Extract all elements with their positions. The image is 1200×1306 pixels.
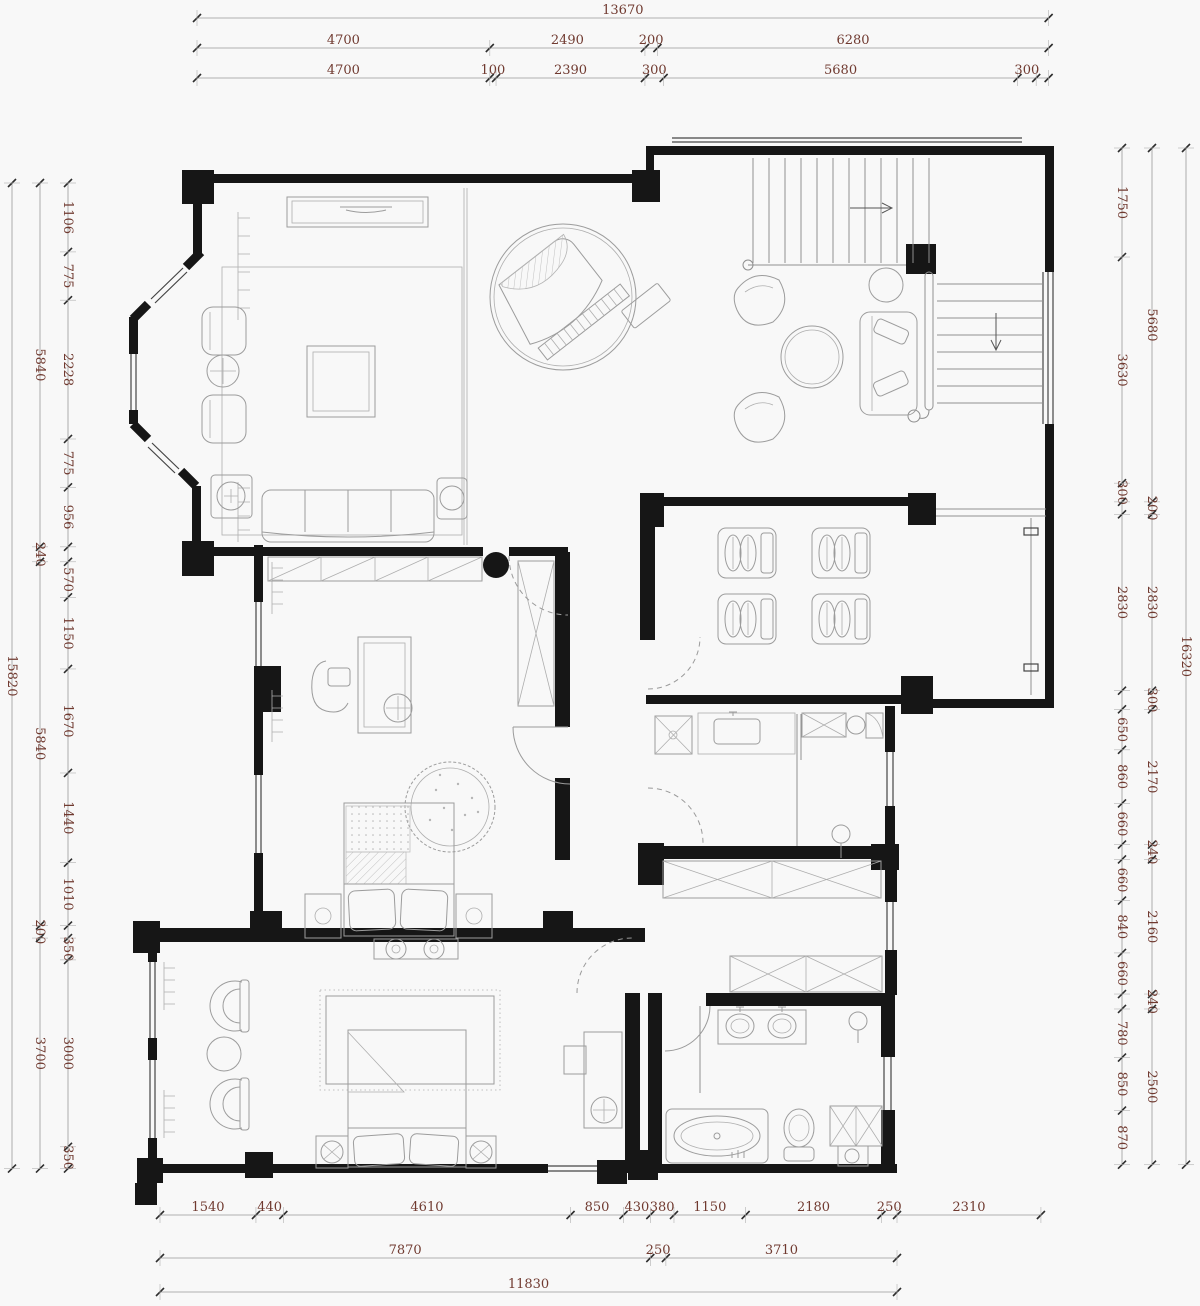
dimension-label: 5840 <box>32 348 47 381</box>
dimension-label: 380 <box>650 1200 675 1215</box>
dimension-label: 2390 <box>554 63 587 78</box>
basin <box>847 716 865 734</box>
dimension-label: 11830 <box>508 1277 549 1292</box>
dimension-label: 660 <box>1114 812 1129 837</box>
dimension-label: 2830 <box>1144 586 1159 619</box>
dimension-label: 6280 <box>836 33 869 48</box>
wardrobe <box>518 561 554 706</box>
dimension-label: 2830 <box>1114 586 1129 619</box>
dimension-label: 300 <box>1014 63 1039 78</box>
dimension-label: 5840 <box>32 727 47 760</box>
dimension-label: 780 <box>1114 1021 1129 1046</box>
tea-room-furniture <box>718 528 870 644</box>
stair-hall-furniture <box>734 268 917 442</box>
dimension-label: 300 <box>642 63 667 78</box>
dimension-label: 2490 <box>551 33 584 48</box>
dimension-label: 956 <box>60 505 75 530</box>
dimension-label: 4700 <box>327 33 360 48</box>
closets <box>268 557 882 992</box>
dimension-label: 570 <box>60 567 75 592</box>
dimension-label: 3000 <box>60 1037 75 1070</box>
dimension-label: 4700 <box>327 63 360 78</box>
dimension-label: 1750 <box>1114 186 1129 219</box>
shower <box>830 1106 882 1166</box>
plant-stands <box>211 475 467 519</box>
dimension-label: 2170 <box>1144 760 1159 793</box>
dimension-label: 1150 <box>60 617 75 650</box>
fringe-rug <box>320 990 500 1090</box>
tea-table <box>207 1037 241 1071</box>
dimension-label: 3700 <box>32 1037 47 1070</box>
grand-piano <box>489 207 670 385</box>
wall-lamp <box>832 825 850 843</box>
dimension-label: 440 <box>257 1200 282 1215</box>
dimension-label: 100 <box>481 63 506 78</box>
sofa <box>262 490 434 542</box>
dimension-label: 2310 <box>952 1200 985 1215</box>
dimension-label: 5680 <box>1144 308 1159 341</box>
bed <box>348 1030 466 1167</box>
bath-closet <box>730 956 882 992</box>
dimension-label: 430 <box>624 1200 649 1215</box>
door-swings <box>509 556 710 1051</box>
dimension-label: 840 <box>1114 914 1129 939</box>
dimension-label: 250 <box>877 1200 902 1215</box>
dimension-label: 775 <box>60 264 75 289</box>
dimension-label: 850 <box>1114 1072 1129 1097</box>
sink <box>714 719 760 744</box>
loveseat <box>860 312 917 415</box>
toilet <box>784 1109 814 1161</box>
master-bedroom-furniture <box>207 939 622 1168</box>
bathroom-fixtures <box>666 1007 882 1166</box>
living-room-furniture <box>202 197 671 542</box>
dimension-label: 15820 <box>4 655 19 696</box>
dimension-label: 2500 <box>1144 1070 1159 1103</box>
dimension-label: 1540 <box>191 1200 224 1215</box>
dimension-label: 850 <box>585 1200 610 1215</box>
staircase <box>743 158 1043 422</box>
bedroom-closet-strip <box>268 557 482 581</box>
dimension-label: 2180 <box>797 1200 830 1215</box>
side-stool <box>869 268 903 302</box>
dimension-label: 4610 <box>410 1200 443 1215</box>
dimension-label: 2160 <box>1144 910 1159 943</box>
round-rug <box>405 762 495 852</box>
double-vanity <box>718 1007 806 1044</box>
study-bedroom-furniture <box>305 637 495 938</box>
writing-desk <box>564 1032 622 1128</box>
dimension-label: 660 <box>1114 961 1129 986</box>
dimension-label: 775 <box>60 451 75 476</box>
wall-light <box>849 1012 867 1030</box>
dimension-label: 660 <box>1114 868 1129 893</box>
dimension-label: 350 <box>60 1145 75 1170</box>
dimension-label: 16320 <box>1178 636 1193 677</box>
dimension-label: 1440 <box>60 801 75 834</box>
floor-plan-drawing: 1367047002490200628047001002390300568030… <box>0 0 1200 1306</box>
dimension-label: 3630 <box>1114 354 1129 387</box>
round-table <box>781 326 843 388</box>
bathtub <box>666 1109 768 1163</box>
dimension-label: 13670 <box>602 3 643 18</box>
dimension-label: 1150 <box>693 1200 726 1215</box>
dimension-label: 7870 <box>389 1243 422 1258</box>
dimension-label: 300 <box>1114 480 1129 505</box>
dimension-label: 2228 <box>60 353 75 386</box>
dimension-label: 860 <box>1114 764 1129 789</box>
armchairs <box>202 307 246 443</box>
round-column <box>483 552 509 578</box>
desk <box>358 637 411 733</box>
dimension-label: 3710 <box>765 1243 798 1258</box>
dimension-label: 1106 <box>60 201 75 234</box>
bed-with-canopy <box>344 803 454 936</box>
laundry-area <box>655 712 883 858</box>
dimension-label: 1670 <box>60 704 75 737</box>
dimension-label: 300 <box>1144 688 1159 713</box>
dimension-label: 200 <box>32 919 47 944</box>
hall-closet <box>663 861 881 898</box>
dimension-label: 350 <box>60 937 75 962</box>
dimension-label: 870 <box>1114 1125 1129 1150</box>
floor-plan-page: 1367047002490200628047001002390300568030… <box>0 0 1200 1306</box>
dimension-label: 650 <box>1114 717 1129 742</box>
coffee-table <box>307 346 375 417</box>
dimension-label: 1010 <box>60 878 75 911</box>
area-rug <box>222 267 462 535</box>
dimension-label: 5680 <box>824 63 857 78</box>
fan-nightstands <box>316 1136 496 1168</box>
dimension-label: 250 <box>646 1243 671 1258</box>
dimension-label: 200 <box>1144 496 1159 521</box>
